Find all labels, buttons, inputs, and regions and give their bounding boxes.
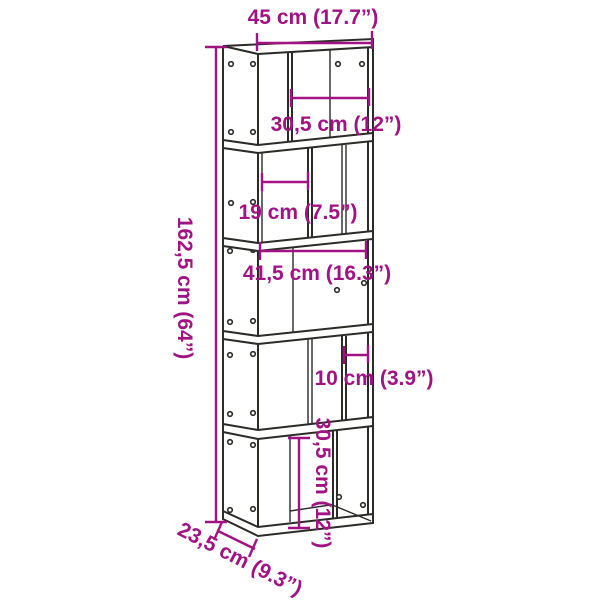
screw-hole xyxy=(228,412,233,417)
shelf-board-4 xyxy=(223,133,373,153)
dimension-overall-height: 162,5 cm (64”) xyxy=(173,47,227,522)
screw-hole xyxy=(228,440,233,445)
screw-hole xyxy=(336,62,341,67)
screw-hole xyxy=(251,352,256,357)
dimension-label-bottom-shelf-inner-height: 30,5 cm (12”) xyxy=(311,418,334,549)
dimension-label-overall-width: 45 cm (17.7”) xyxy=(248,6,379,29)
screw-hole xyxy=(229,201,234,206)
screw-hole xyxy=(228,353,233,358)
tier4-dividers xyxy=(262,145,346,243)
dimension-top-shelf-inner-width: 30,5 cm (12”) xyxy=(271,88,402,136)
dimension-label-second-shelf-inner-width: 19 cm (7.5”) xyxy=(238,201,357,224)
screw-hole xyxy=(228,508,233,513)
dimension-diagram-canvas: 45 cm (17.7”) 30,5 cm (12”) 19 cm (7.5”)… xyxy=(0,0,600,600)
shelf-board-2 xyxy=(223,324,373,344)
screw-hole xyxy=(228,249,233,254)
screw-hole xyxy=(251,62,256,67)
screw-hole xyxy=(251,319,256,324)
screw-hole xyxy=(251,443,256,448)
shelf-board-1 xyxy=(223,417,373,439)
screw-hole xyxy=(251,130,256,135)
dimension-label-top-shelf-inner-width: 30,5 cm (12”) xyxy=(271,113,402,136)
screw-hole xyxy=(251,507,256,512)
screw-hole xyxy=(228,320,233,325)
screw-hole xyxy=(229,62,234,67)
screw-hole xyxy=(335,288,340,293)
dimension-label-middle-shelf-inner-width: 41,5 cm (16.3”) xyxy=(243,262,391,285)
dimension-label-fourth-shelf-inner-width: 10 cm (3.9”) xyxy=(314,367,433,390)
dimension-label-overall-height: 162,5 cm (64”) xyxy=(173,217,196,359)
screw-hole xyxy=(251,411,256,416)
bookcase-dimension-diagram: 45 cm (17.7”) 30,5 cm (12”) 19 cm (7.5”)… xyxy=(0,0,600,600)
screw-hole xyxy=(337,495,342,500)
top-panel xyxy=(223,39,373,54)
screw-hole xyxy=(229,130,234,135)
shelf-board-3 xyxy=(223,231,373,251)
screw-hole xyxy=(361,503,366,508)
screw-hole xyxy=(360,62,365,67)
dimension-second-shelf-inner-width: 19 cm (7.5”) xyxy=(238,172,357,224)
